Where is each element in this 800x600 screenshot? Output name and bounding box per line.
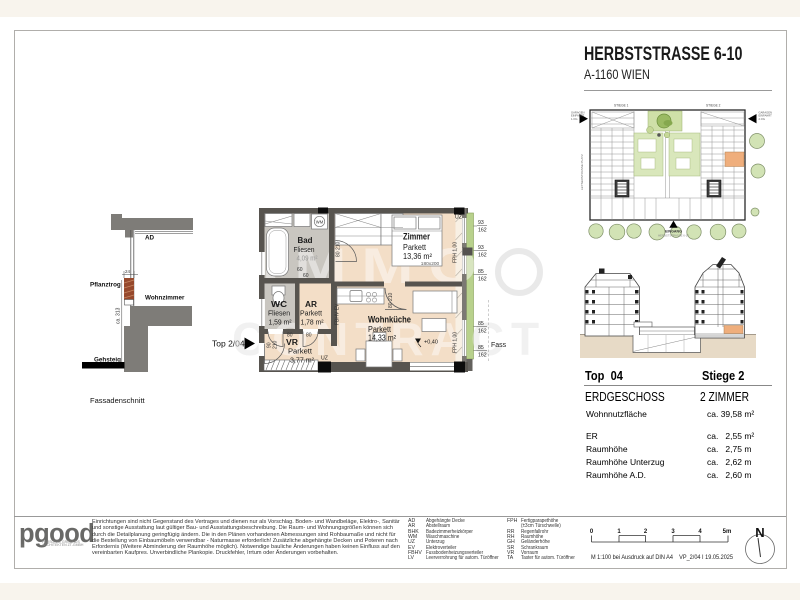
svg-text:2.OG: 2.OG	[759, 117, 765, 121]
svg-text:UZ: UZ	[455, 215, 462, 221]
svg-text:Parkett: Parkett	[288, 347, 313, 356]
svg-text:85: 85	[478, 321, 484, 327]
svg-text:80: 80	[287, 333, 293, 339]
svg-text:STIEGE 2: STIEGE 2	[706, 104, 721, 108]
svg-text:Wohnzimmer: Wohnzimmer	[145, 295, 185, 302]
svg-text:5m: 5m	[723, 529, 732, 535]
svg-text:60: 60	[297, 267, 303, 273]
svg-text:210: 210	[273, 340, 279, 349]
svg-text:93: 93	[478, 245, 484, 251]
svg-text:0: 0	[590, 529, 594, 535]
svg-text:13,36 m²: 13,36 m²	[403, 252, 432, 261]
svg-text:162: 162	[478, 253, 487, 259]
svg-text:162: 162	[478, 329, 487, 335]
svg-text:UZ: UZ	[321, 356, 328, 362]
svg-text:162: 162	[478, 277, 487, 283]
svg-text:AD: AD	[145, 235, 155, 242]
svg-text:FBHV EV: FBHV EV	[335, 303, 341, 325]
svg-text:Zimmer: Zimmer	[403, 232, 430, 242]
svg-text:ca. 313: ca. 313	[116, 307, 122, 324]
svg-text:1.OG: 1.OG	[571, 117, 577, 121]
svg-text:24: 24	[125, 269, 131, 274]
svg-text:80: 80	[306, 333, 312, 339]
svg-text:Fassadenschnitt: Fassadenschnitt	[90, 396, 146, 405]
svg-text:85: 85	[478, 345, 484, 351]
svg-text:4,09 m²: 4,09 m²	[297, 254, 318, 263]
svg-text:Wohnküche: Wohnküche	[368, 315, 411, 325]
svg-text:FPH 1,00: FPH 1,00	[453, 332, 459, 353]
svg-text:Pflanztrog: Pflanztrog	[90, 282, 121, 289]
svg-text:80 210: 80 210	[336, 241, 342, 257]
svg-text:WM: WM	[316, 220, 324, 225]
svg-text:M 1:100 bei Ausdruck auf DIN A: M 1:100 bei Ausdruck auf DIN A4 VP_2/04 …	[591, 554, 733, 561]
svg-text:2: 2	[644, 529, 648, 535]
svg-text:93: 93	[478, 220, 484, 226]
svg-text:4: 4	[698, 529, 702, 535]
svg-text:180x200: 180x200	[421, 261, 440, 267]
svg-text:HERBSTSTRASSE 6-10: HERBSTSTRASSE 6-10	[658, 234, 689, 238]
svg-text:3,77 m²: 3,77 m²	[290, 356, 314, 365]
svg-text:FPH 1,00: FPH 1,00	[453, 242, 459, 263]
svg-text:Bad: Bad	[298, 235, 313, 245]
svg-text:162: 162	[478, 228, 487, 234]
svg-text:60: 60	[303, 273, 309, 279]
svg-text:1,78 m²: 1,78 m²	[301, 318, 324, 327]
svg-text:Fliesen: Fliesen	[268, 309, 290, 318]
svg-text:80 210: 80 210	[388, 292, 394, 308]
svg-text:14,33 m²: 14,33 m²	[368, 334, 396, 343]
svg-text:N: N	[755, 525, 764, 540]
svg-text:162: 162	[478, 353, 487, 359]
svg-text:3: 3	[671, 529, 675, 535]
svg-text:85: 85	[478, 269, 484, 275]
svg-text:1: 1	[617, 529, 621, 535]
svg-text:1,59 m²: 1,59 m²	[269, 318, 292, 327]
svg-text:Fass: Fass	[491, 342, 507, 349]
svg-text:Parkett: Parkett	[300, 309, 323, 318]
svg-text:Parkett: Parkett	[403, 243, 427, 252]
svg-text:STIEGE 1: STIEGE 1	[614, 104, 629, 108]
svg-text:LEYSERSTRASSE PLATZ: LEYSERSTRASSE PLATZ	[580, 154, 584, 190]
svg-text:+0,40: +0,40	[424, 340, 438, 346]
